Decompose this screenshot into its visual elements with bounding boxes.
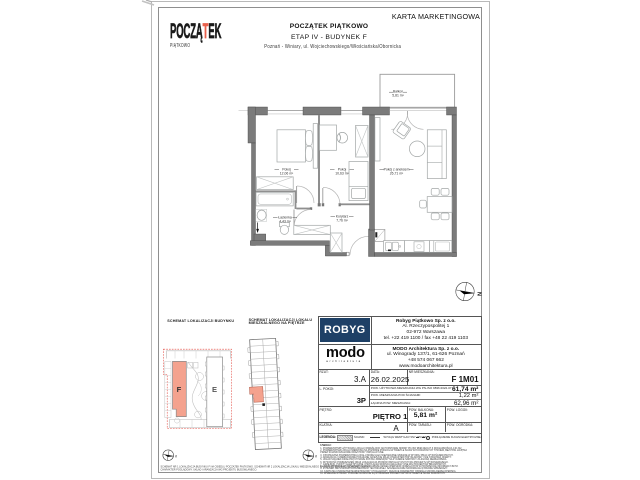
svg-text:10,63 m²: 10,63 m²: [335, 171, 349, 175]
svg-text:5,81 m²: 5,81 m²: [392, 93, 404, 97]
svg-text:F: F: [177, 385, 182, 394]
svg-text:N: N: [476, 292, 482, 296]
svg-text:E: E: [212, 385, 217, 394]
svg-text:N: N: [314, 455, 318, 457]
svg-text:26,71 m²: 26,71 m²: [390, 171, 404, 175]
svg-text:N: N: [174, 455, 178, 457]
svg-text:12,06 m²: 12,06 m²: [280, 171, 294, 175]
svg-text:4,43 m²: 4,43 m²: [279, 219, 291, 223]
svg-text:CHARAKTER POGLĄDOWY. UKŁAD I A: CHARAKTER POGLĄDOWY. UKŁAD I ARANŻACJA W…: [161, 468, 258, 471]
svg-text:7,76 m²: 7,76 m²: [336, 218, 348, 222]
